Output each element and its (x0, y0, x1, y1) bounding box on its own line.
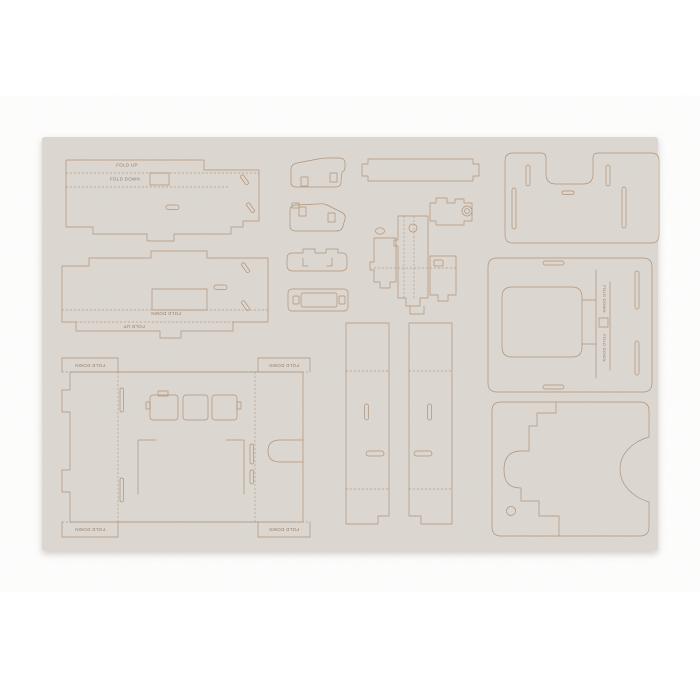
diecut-sheet-illustration: FOLD UP FOLD DOWN FOLD DOWN FOLD UP FOLD… (0, 0, 700, 700)
fold-label-3: FOLD UP (123, 324, 144, 329)
fold-label-5: FOLD DOWN (269, 363, 299, 368)
fold-label-8: FOLD DOWN (602, 285, 607, 313)
fold-label-4: FOLD DOWN (75, 363, 105, 368)
fold-label-6: FOLD DOWN (75, 527, 105, 532)
fold-label-0: FOLD UP (116, 163, 137, 168)
fold-label-2: FOLD DOWN (151, 311, 181, 316)
fold-label-7: FOLD DOWN (269, 527, 299, 532)
product-photo-canvas: FOLD UP FOLD DOWN FOLD DOWN FOLD UP FOLD… (0, 0, 700, 700)
fold-label-1: FOLD DOWN (110, 177, 140, 182)
fold-label-9: FOLD DOWN (602, 334, 607, 362)
